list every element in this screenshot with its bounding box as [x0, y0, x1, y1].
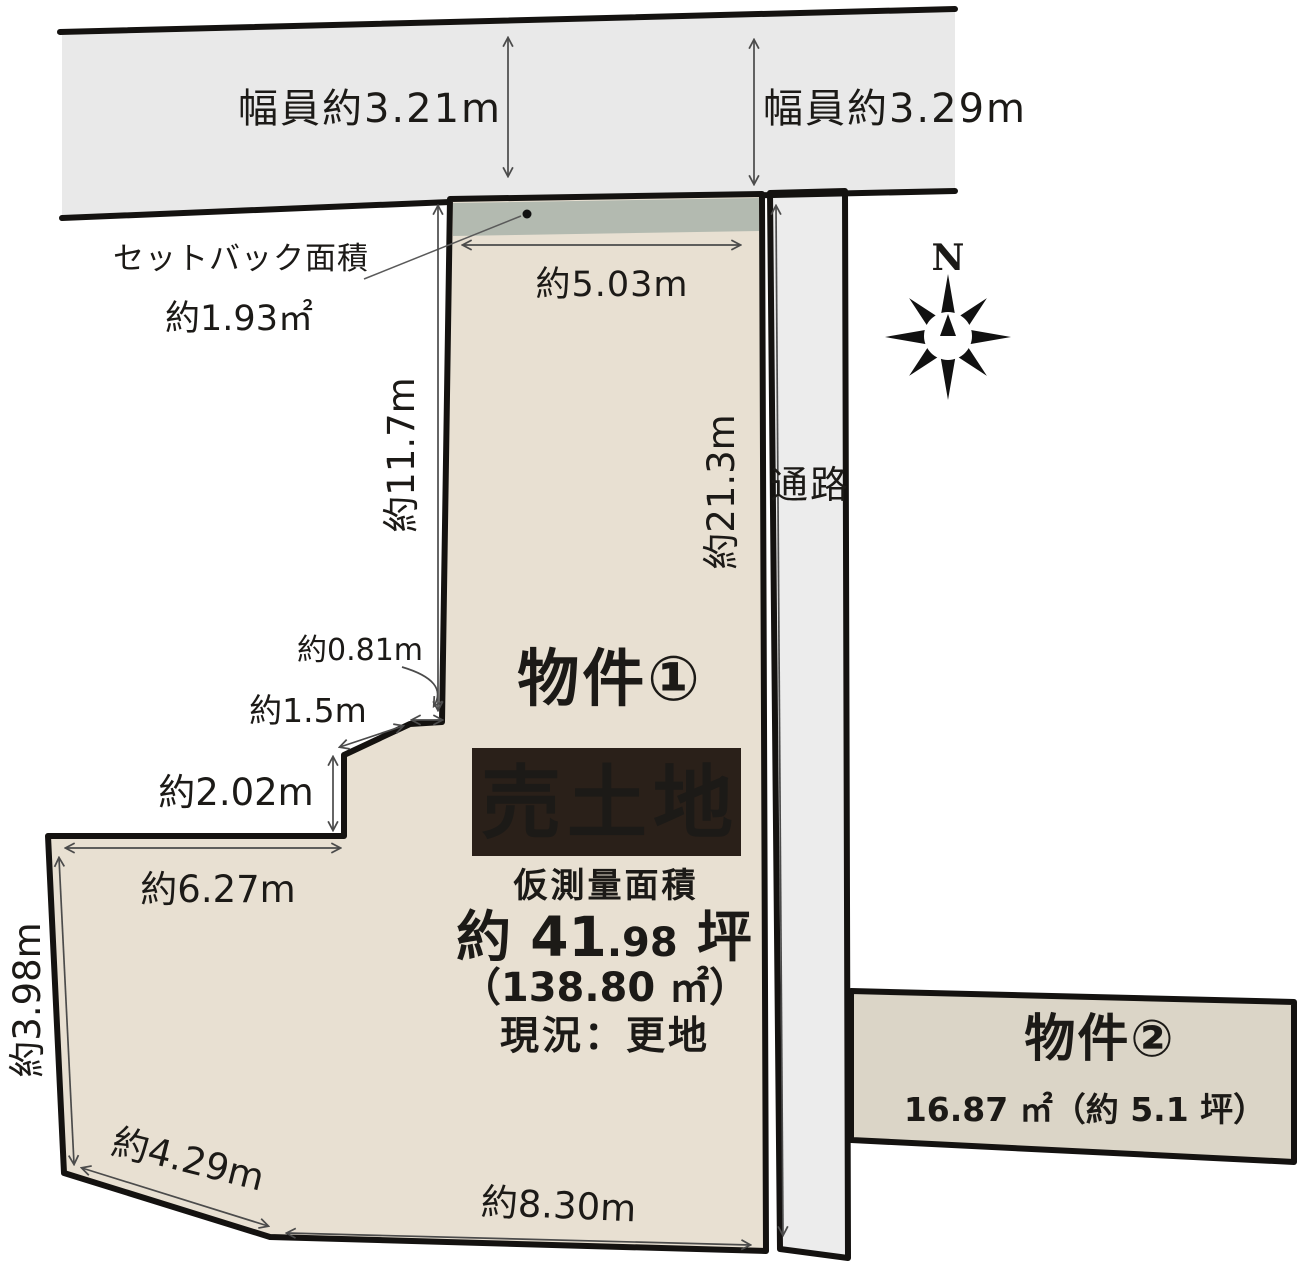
setback-label: セットバック面積	[113, 241, 369, 277]
setback-area-label: 約1.93㎡	[165, 298, 313, 339]
dim-notch-diagonal-label: 約1.5m	[249, 691, 367, 730]
dim-middle-top-label: 約6.27m	[140, 868, 295, 911]
compass: N	[885, 237, 1011, 400]
setback-strip	[453, 198, 759, 236]
road-width-right-label: 幅員約3.29m	[763, 86, 1027, 132]
property1-title: 物件①	[517, 642, 703, 715]
property1-sale-badge-label: 売土地	[481, 757, 739, 850]
property1-area-m2: （138.80 ㎡）	[461, 965, 749, 1011]
road-width-left-label: 幅員約3.21m	[238, 86, 502, 132]
dim-top-width-label: 約5.03m	[535, 265, 688, 305]
property1-status: 現況：更地	[500, 1014, 710, 1059]
property2-title: 物件②	[1024, 1010, 1175, 1069]
dim-right-height-label: 約21.3m	[700, 414, 743, 569]
dim-upper-left-label: 約11.7m	[380, 377, 423, 532]
property1-parcel	[48, 194, 766, 1251]
setback-marker-dot	[523, 210, 532, 219]
property1-area-tsubo: 約 41.98 坪	[456, 905, 752, 969]
property1-survey-caption: 仮測量面積	[513, 866, 699, 906]
land-plot-diagram: N 幅員約3.21m 幅員約3.29m セットバック面積 約1.93㎡ 約5.0…	[0, 0, 1300, 1270]
compass-north-label: N	[932, 237, 965, 279]
property2-area-label: 16.87 ㎡（約 5.1 坪）	[904, 1090, 1266, 1129]
dim-bottom-label: 約8.30m	[480, 1181, 637, 1231]
dim-notch-width-label: 約0.81m	[297, 633, 423, 668]
passage-label: 通路	[770, 463, 850, 507]
dim-lower-left-label: 約3.98m	[6, 922, 49, 1077]
dim-leader-notch-width	[402, 667, 438, 706]
dim-notch-height-label: 約2.02m	[158, 771, 313, 814]
plot-diagram-canvas: N 幅員約3.21m 幅員約3.29m セットバック面積 約1.93㎡ 約5.0…	[0, 0, 1300, 1270]
